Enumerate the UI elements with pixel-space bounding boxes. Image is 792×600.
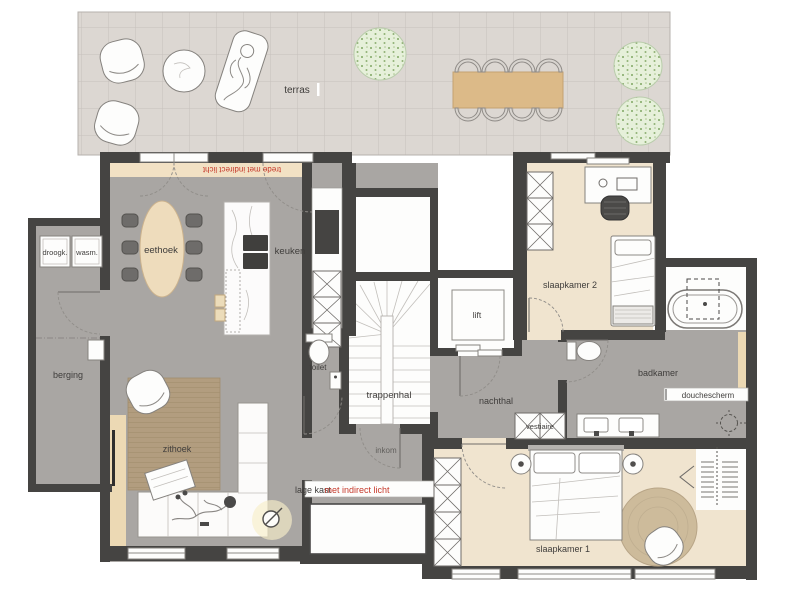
low-cabinet: lage kast met indirect licht	[295, 481, 434, 554]
stool-icon	[215, 309, 225, 321]
label-slaapkamer2: slaapkamer 2	[543, 280, 597, 290]
side-table-icon	[163, 50, 205, 92]
terrace-door-2	[263, 153, 313, 162]
drain	[703, 302, 707, 306]
cabinet	[88, 340, 104, 360]
label-zithoek: zithoek	[163, 444, 192, 454]
label-droogk: droogk.	[42, 248, 67, 257]
bedroom1-window	[452, 569, 500, 579]
living-window	[227, 548, 279, 559]
wardrobe-icon	[527, 172, 553, 250]
label-nachthal: nachthal	[479, 396, 513, 406]
stairwell	[349, 281, 430, 424]
wc-icon	[309, 340, 329, 364]
floor-plan: terras	[0, 0, 792, 600]
label-wasm: wasm.	[75, 248, 98, 257]
bathtub-icon	[668, 290, 742, 328]
label-lift: lift	[473, 310, 482, 320]
stool-icon	[215, 295, 225, 307]
label-vestiaire: vestiaire	[526, 422, 554, 431]
label-douchescherm: douchescherm	[682, 391, 735, 400]
tv-icon	[112, 430, 115, 486]
vanity-icon	[577, 414, 659, 437]
lift-door	[456, 345, 480, 351]
label-trede: trede met indirect licht	[202, 165, 281, 174]
label-badkamer: badkamer	[638, 368, 678, 378]
dining-table-icon	[453, 72, 563, 108]
label-toilet: toilet	[310, 363, 328, 372]
pillow	[534, 453, 575, 473]
double-bed-icon	[530, 450, 622, 540]
single-bed-icon	[611, 236, 655, 326]
hand-basin-icon	[330, 372, 341, 389]
label-terras: terras	[284, 85, 310, 96]
lift-door	[478, 350, 502, 356]
tree-icon	[354, 28, 406, 80]
wc-icon	[577, 342, 601, 361]
void-room	[356, 197, 430, 272]
label-trappenhal: trappenhal	[367, 390, 412, 401]
tree-icon	[616, 97, 664, 145]
label-keuken: keuken	[275, 246, 306, 257]
oven-icon	[315, 210, 339, 254]
label-tick	[317, 83, 320, 96]
vestiaire: vestiaire	[515, 413, 565, 439]
floor-plan-drawing: terras	[0, 0, 792, 600]
low-cabinet-box	[310, 504, 426, 554]
terrace-door-1	[140, 153, 208, 162]
living-window	[128, 548, 185, 559]
label-berging: berging	[53, 370, 83, 380]
bedroom1-window	[518, 569, 631, 579]
pillow	[579, 453, 620, 473]
label-inkom: inkom	[375, 446, 397, 455]
tree-icon	[614, 42, 662, 90]
wardrobe-icon	[434, 458, 461, 566]
label-lage-kast-accent: met indirect licht	[324, 485, 390, 495]
cooktop-icon	[243, 235, 268, 251]
label-slaapkamer1: slaapkamer 1	[536, 544, 590, 554]
sink-icon	[243, 253, 268, 269]
stair-stringer	[381, 316, 393, 424]
terrace: terras	[78, 12, 670, 155]
bedroom1-window	[635, 569, 715, 579]
wc-tank	[567, 342, 576, 360]
label-eethoek: eethoek	[144, 245, 178, 256]
